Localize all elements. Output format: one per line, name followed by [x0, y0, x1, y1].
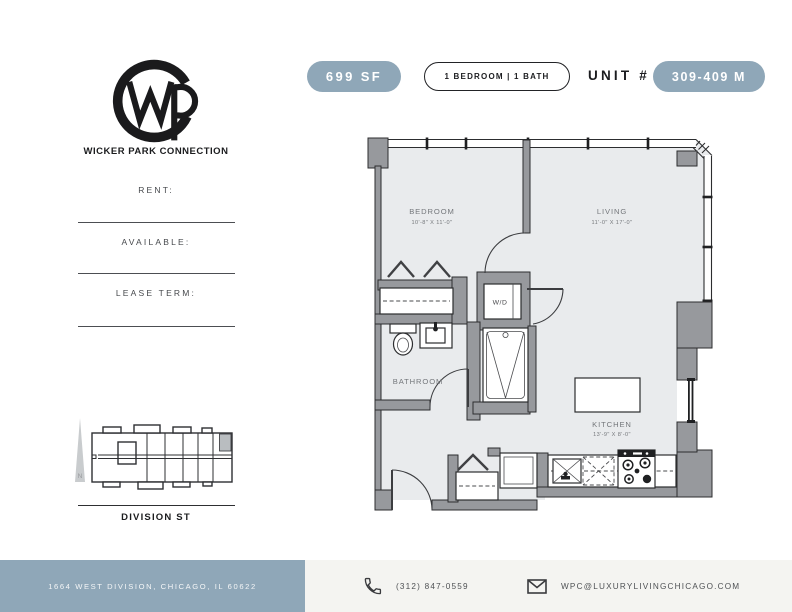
- living-label: LIVING: [597, 207, 627, 216]
- lease-term-field-label: LEASE TERM:: [76, 288, 236, 298]
- kitchen-label: KITCHEN: [592, 420, 632, 429]
- north-label: N: [78, 473, 83, 480]
- window-band-top: [388, 139, 696, 148]
- available-field-label: AVAILABLE:: [76, 237, 236, 247]
- street-line: [78, 505, 235, 506]
- living-dims: 11'-0" X 17'-0": [592, 220, 633, 226]
- refrigerator: [500, 453, 537, 488]
- address-text: 1664 WEST DIVISION, CHICAGO, IL 60622: [48, 582, 257, 591]
- kitchen-dims: 13'-9" X 8'-0": [593, 432, 631, 438]
- bedroom-label: BEDROOM: [409, 207, 455, 216]
- phone-icon: [363, 577, 382, 596]
- unit-number-badge: 309-409 M: [653, 61, 765, 92]
- washer-dryer: W/D: [484, 284, 521, 319]
- brand-name: WICKER PARK CONNECTION: [40, 146, 272, 157]
- footer-address-block: 1664 WEST DIVISION, CHICAGO, IL 60622: [0, 560, 305, 612]
- shower: [483, 328, 528, 402]
- email-text: WPC@LUXURYLIVINGCHICAGO.COM: [561, 582, 740, 591]
- rent-field-blank: [78, 222, 235, 223]
- floor-plan: W/D: [363, 128, 731, 514]
- unit-number-label: UNIT #: [588, 68, 650, 83]
- wpc-logo: [92, 56, 222, 148]
- footer-email: WPC@LUXURYLIVINGCHICAGO.COM: [527, 560, 740, 612]
- window-band-right: [704, 155, 712, 302]
- bed-bath-badge: 1 BEDROOM | 1 BATH: [424, 62, 570, 91]
- building-outline: [92, 425, 232, 489]
- stove: [618, 450, 655, 488]
- svg-text:W/D: W/D: [493, 300, 508, 307]
- email-icon: [527, 579, 547, 594]
- bedroom-dims: 10'-8" X 11'-0": [412, 220, 453, 226]
- phone-text: (312) 847-0559: [396, 582, 469, 591]
- street-label: DIVISION ST: [76, 512, 236, 523]
- square-footage-badge: 699 SF: [307, 61, 401, 92]
- bathroom-vanity: [420, 322, 452, 348]
- kitchen-sink: [553, 459, 581, 483]
- footer-phone: (312) 847-0559: [363, 560, 469, 612]
- flyer-page: 699 SF 1 BEDROOM | 1 BATH UNIT # 309-409…: [0, 0, 792, 612]
- lease-term-field-blank: [78, 326, 235, 327]
- building-key-map: N: [70, 414, 238, 506]
- balcony-door: [687, 378, 695, 423]
- rent-field-label: RENT:: [76, 185, 236, 195]
- bathroom-label: BATHROOM: [393, 377, 444, 386]
- available-field-blank: [78, 273, 235, 274]
- highlighted-unit: [220, 434, 232, 451]
- kitchen-island: [575, 378, 640, 412]
